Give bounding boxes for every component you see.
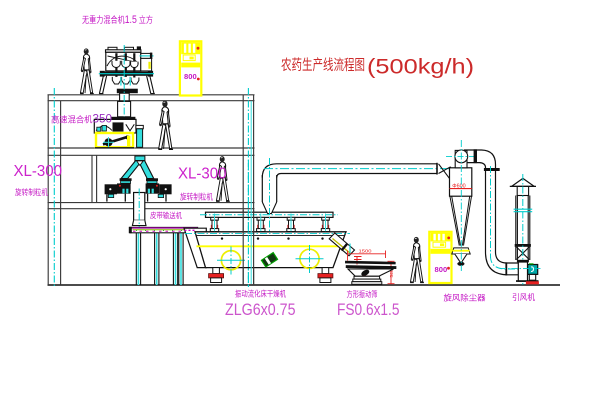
svg-text:振动流化床干燥机: 振动流化床干燥机 [235, 289, 286, 299]
svg-text:引风机: 引风机 [512, 292, 535, 302]
svg-text:XL-300: XL-300 [178, 166, 227, 183]
svg-text:农药生产线流程图: 农药生产线流程图 [281, 57, 365, 74]
svg-text:旋转制粒机: 旋转制粒机 [180, 192, 213, 202]
svg-text:800: 800 [435, 265, 448, 274]
svg-text:(500kg/h): (500kg/h) [367, 56, 474, 79]
svg-text:方形振动筛: 方形振动筛 [347, 289, 378, 299]
svg-text:ZLG6x0.75: ZLG6x0.75 [225, 301, 296, 319]
svg-text:800: 800 [184, 72, 197, 81]
svg-text:旋转制粒机: 旋转制粒机 [15, 187, 48, 197]
svg-text:无重力混合机1.5 立方: 无重力混合机1.5 立方 [82, 14, 153, 26]
svg-text:高速混合机350: 高速混合机350 [51, 112, 112, 126]
svg-text:旋风除尘器: 旋风除尘器 [444, 293, 486, 303]
svg-text:1500: 1500 [359, 249, 373, 254]
svg-text:皮带输送机: 皮带输送机 [150, 210, 182, 220]
svg-text:XL-300: XL-300 [14, 163, 63, 180]
svg-text:FS0.6x1.5: FS0.6x1.5 [337, 301, 400, 319]
